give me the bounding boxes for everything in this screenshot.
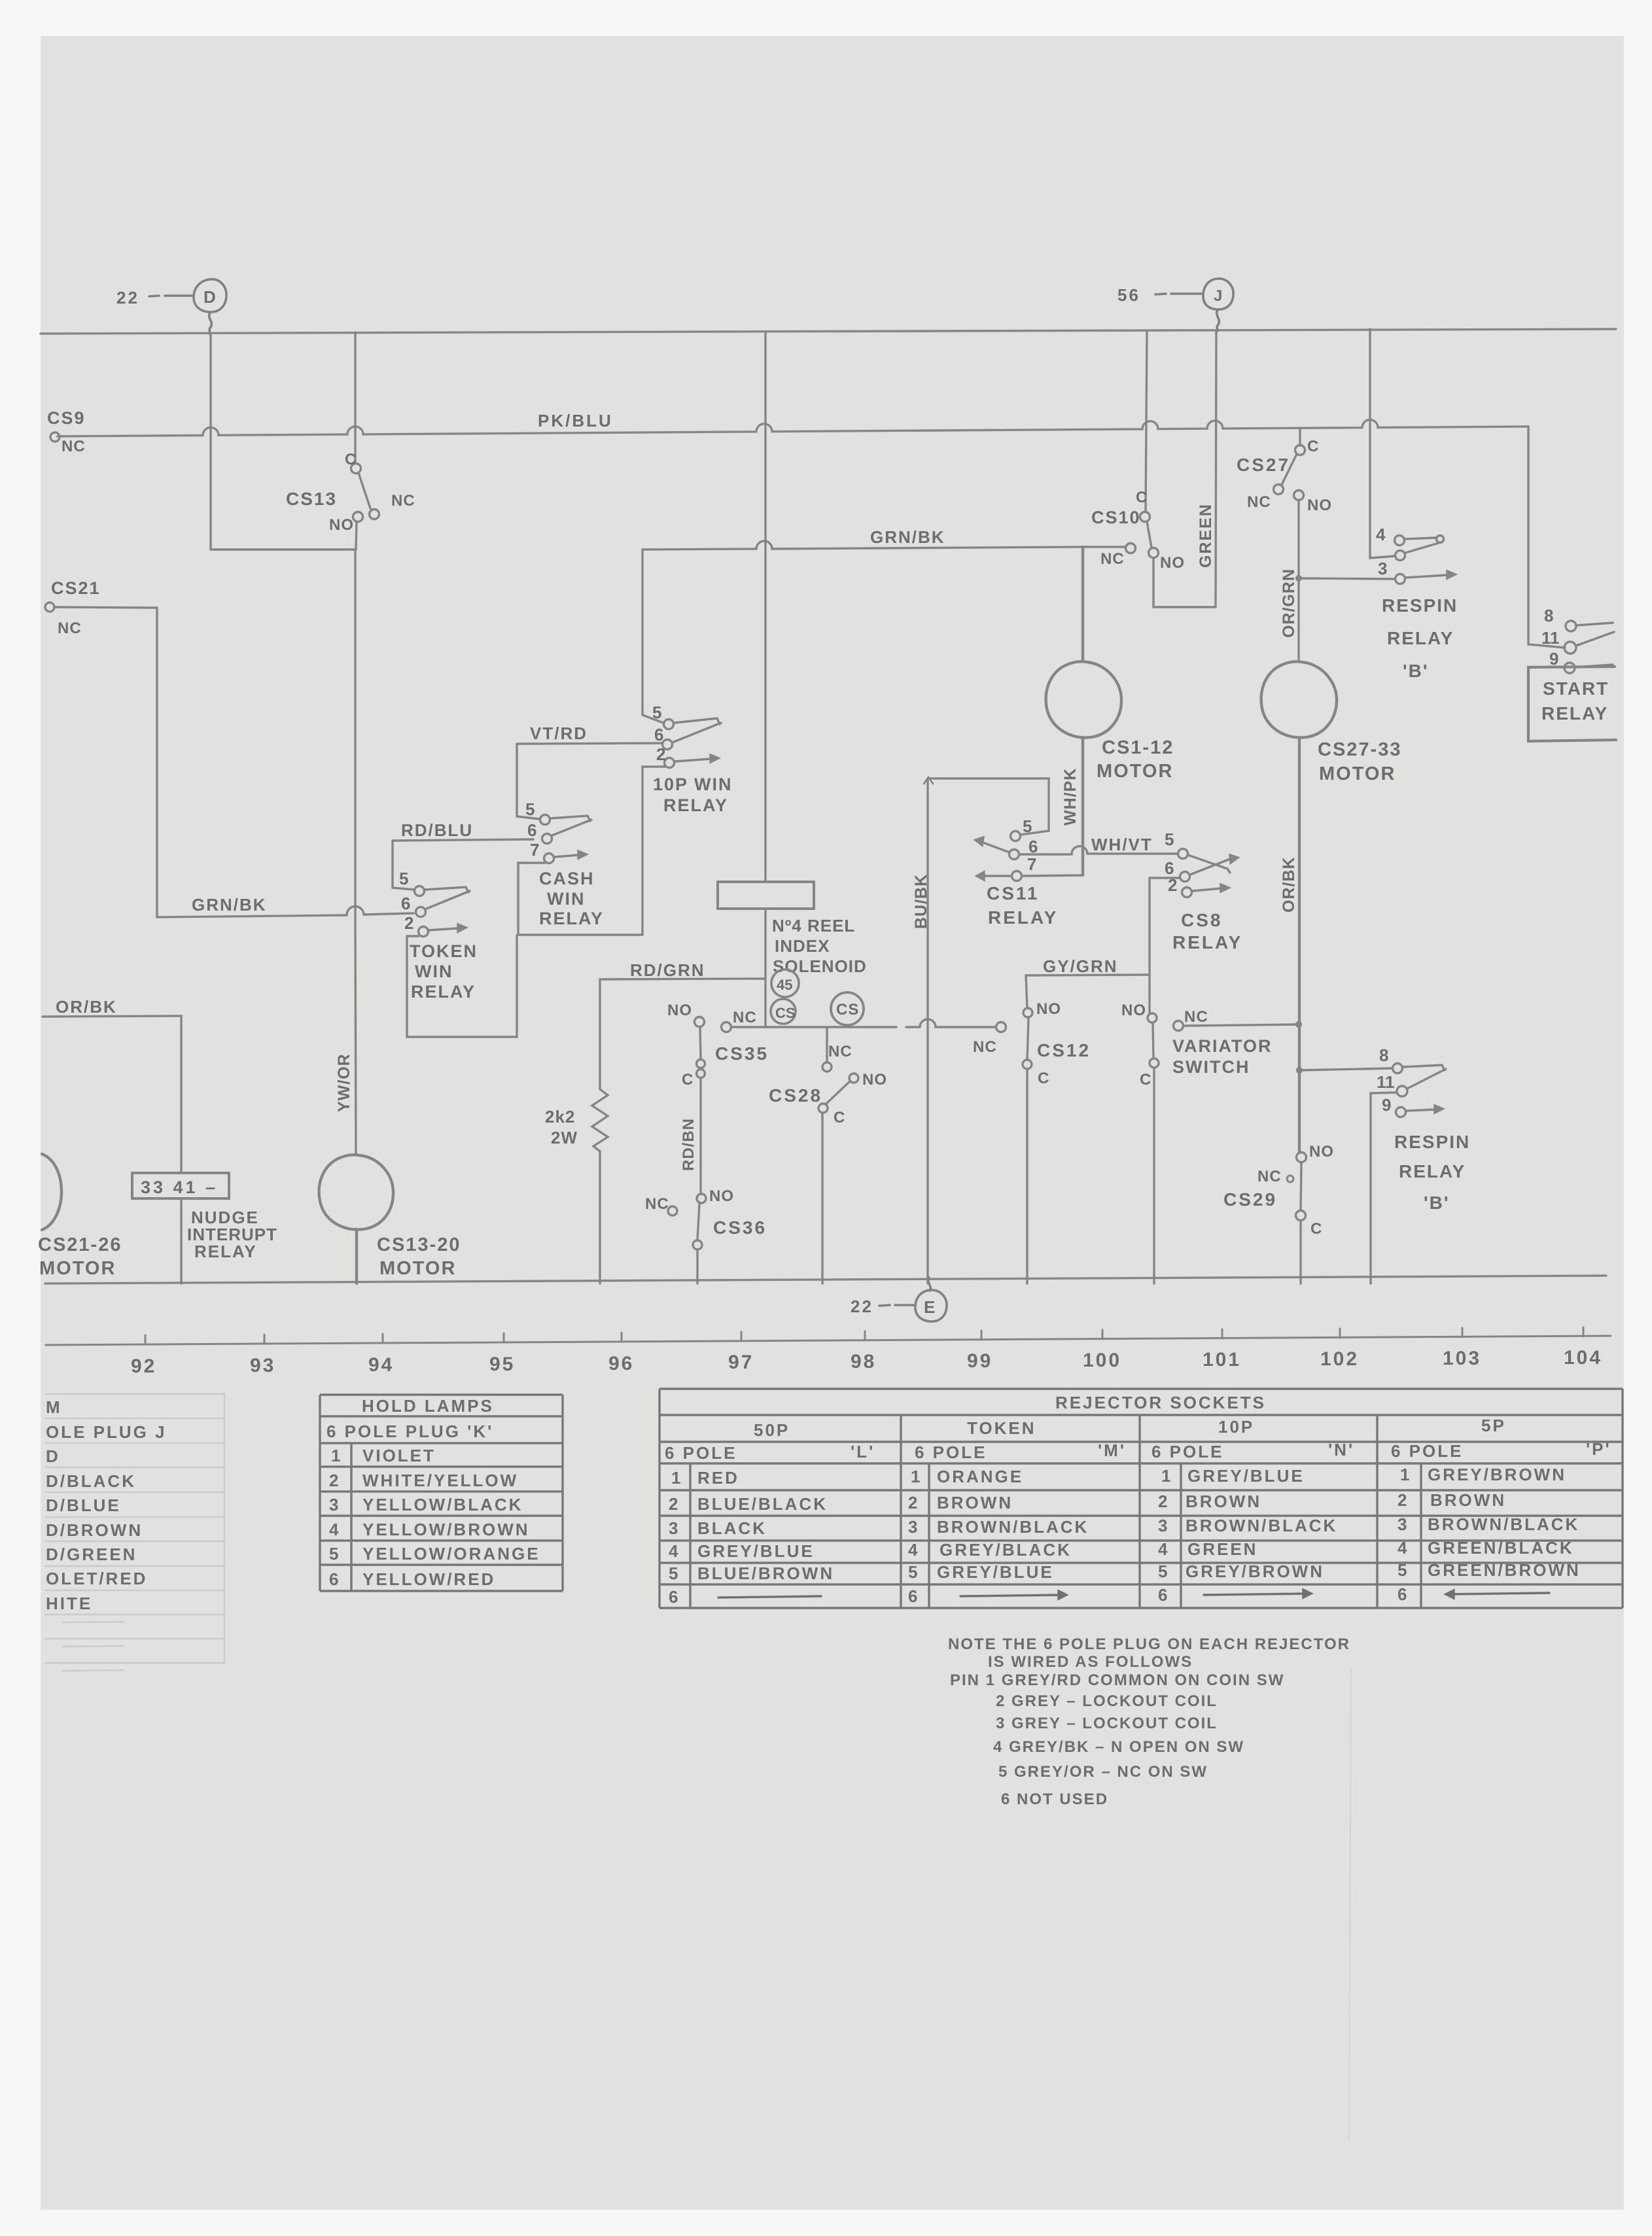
- svg-text:3: 3: [329, 1495, 340, 1514]
- svg-text:98: 98: [851, 1351, 876, 1372]
- svg-text:8: 8: [1379, 1045, 1388, 1065]
- svg-text:SWITCH: SWITCH: [1172, 1057, 1250, 1077]
- svg-text:NO: NO: [1160, 554, 1185, 572]
- svg-text:NO: NO: [1121, 1002, 1146, 1019]
- svg-text:CS35: CS35: [715, 1043, 769, 1064]
- svg-text:92: 92: [131, 1355, 156, 1377]
- svg-text:GREY/BLUE: GREY/BLUE: [1187, 1466, 1305, 1486]
- svg-text:GREEN/BLACK: GREEN/BLACK: [1428, 1538, 1574, 1558]
- svg-text:6 POLE: 6 POLE: [1151, 1442, 1223, 1461]
- svg-text:RESPIN: RESPIN: [1382, 595, 1458, 616]
- svg-text:6: 6: [401, 894, 410, 913]
- svg-text:NO: NO: [862, 1071, 887, 1089]
- svg-text:6: 6: [669, 1587, 680, 1607]
- svg-text:RELAY: RELAY: [663, 795, 728, 815]
- svg-text:M: M: [46, 1397, 62, 1417]
- svg-text:5: 5: [525, 799, 535, 819]
- svg-text:103: 103: [1443, 1348, 1481, 1369]
- svg-text:GREEN/BROWN: GREEN/BROWN: [1428, 1560, 1581, 1580]
- svg-text:PIN 1 GREY/RD COMMON ON COIN S: PIN 1 GREY/RD COMMON ON COIN SW: [950, 1671, 1284, 1689]
- svg-text:6: 6: [654, 725, 663, 744]
- svg-text:NOTE THE 6 POLE PLUG ON EACH R: NOTE THE 6 POLE PLUG ON EACH REJECTOR: [948, 1635, 1350, 1653]
- svg-text:BROWN/BLACK: BROWN/BLACK: [1428, 1514, 1579, 1534]
- svg-text:2: 2: [1158, 1492, 1169, 1511]
- svg-text:BROWN: BROWN: [937, 1493, 1013, 1512]
- svg-text:OR/GRN: OR/GRN: [1280, 568, 1298, 638]
- svg-text:22: 22: [851, 1297, 873, 1316]
- svg-text:CS21: CS21: [51, 578, 101, 598]
- svg-text:5 GREY/OR – NC ON SW: 5 GREY/OR – NC ON SW: [998, 1763, 1208, 1781]
- svg-text:WH/VT: WH/VT: [1091, 835, 1153, 854]
- svg-text:1: 1: [1161, 1466, 1172, 1486]
- svg-text:2W: 2W: [551, 1128, 578, 1147]
- svg-text:BROWN/BLACK: BROWN/BLACK: [937, 1517, 1089, 1537]
- svg-text:BROWN: BROWN: [1430, 1490, 1506, 1510]
- svg-text:YELLOW/RED: YELLOW/RED: [362, 1569, 495, 1589]
- svg-text:C: C: [1307, 438, 1318, 455]
- svg-text:BROWN: BROWN: [1186, 1492, 1261, 1511]
- svg-text:MOTOR: MOTOR: [39, 1258, 116, 1279]
- svg-text:2 GREY – LOCKOUT COIL: 2 GREY – LOCKOUT COIL: [996, 1692, 1218, 1710]
- svg-text:RELAY: RELAY: [411, 982, 476, 1002]
- svg-text:3: 3: [1397, 1514, 1409, 1534]
- svg-text:RD/GRN: RD/GRN: [630, 960, 705, 980]
- svg-text:6 POLE: 6 POLE: [915, 1442, 987, 1462]
- svg-text:VARIATOR: VARIATOR: [1172, 1036, 1273, 1056]
- svg-text:4: 4: [1158, 1539, 1169, 1559]
- svg-text:CS13-20: CS13-20: [377, 1234, 461, 1255]
- svg-text:HOLD LAMPS: HOLD LAMPS: [362, 1396, 494, 1416]
- svg-text:5: 5: [1165, 830, 1174, 849]
- svg-text:C: C: [1038, 1070, 1049, 1087]
- svg-text:CS29: CS29: [1223, 1189, 1277, 1210]
- svg-text:D/GREEN: D/GREEN: [46, 1545, 137, 1564]
- svg-text:2: 2: [656, 744, 665, 764]
- svg-text:E: E: [924, 1297, 935, 1317]
- svg-text:4: 4: [908, 1540, 919, 1560]
- svg-text:SOLENOID: SOLENOID: [773, 956, 867, 976]
- svg-text:NO: NO: [1309, 1143, 1334, 1161]
- svg-text:BROWN/BLACK: BROWN/BLACK: [1186, 1516, 1337, 1535]
- svg-text:2: 2: [669, 1494, 680, 1514]
- svg-text:MOTOR: MOTOR: [1319, 763, 1396, 784]
- svg-text:4: 4: [1376, 525, 1386, 544]
- svg-text:6: 6: [1397, 1584, 1409, 1604]
- svg-text:CASH: CASH: [539, 869, 595, 888]
- svg-text:8: 8: [1544, 606, 1553, 625]
- svg-text:100: 100: [1083, 1350, 1121, 1371]
- svg-text:RELAY: RELAY: [539, 909, 604, 928]
- svg-text:97: 97: [728, 1352, 754, 1373]
- svg-text:HITE: HITE: [46, 1594, 92, 1613]
- svg-text:'B': 'B': [1403, 661, 1429, 681]
- svg-text:2: 2: [1168, 875, 1177, 895]
- svg-text:D/BLACK: D/BLACK: [46, 1471, 136, 1491]
- svg-text:MOTOR: MOTOR: [379, 1258, 456, 1279]
- svg-text:ORANGE: ORANGE: [937, 1467, 1023, 1486]
- svg-text:5: 5: [1158, 1562, 1169, 1581]
- svg-text:2: 2: [1397, 1490, 1409, 1510]
- svg-text:94: 94: [368, 1354, 394, 1376]
- svg-text:2k2: 2k2: [545, 1107, 575, 1127]
- svg-text:GREY/BLACK: GREY/BLACK: [940, 1540, 1072, 1560]
- svg-text:YELLOW/ORANGE: YELLOW/ORANGE: [362, 1544, 540, 1563]
- svg-text:5: 5: [399, 869, 408, 888]
- svg-text:VT/RD: VT/RD: [530, 724, 588, 743]
- svg-text:GREY/BROWN: GREY/BROWN: [1186, 1562, 1324, 1581]
- svg-text:4: 4: [329, 1520, 340, 1539]
- svg-text:WH/PK: WH/PK: [1061, 768, 1080, 826]
- svg-text:1: 1: [671, 1468, 682, 1488]
- svg-text:IS WIRED AS FOLLOWS: IS WIRED AS FOLLOWS: [988, 1653, 1193, 1671]
- svg-text:CS27: CS27: [1237, 455, 1290, 475]
- svg-text:5: 5: [908, 1562, 919, 1582]
- svg-text:CS12: CS12: [1037, 1040, 1091, 1060]
- svg-text:YELLOW/BROWN: YELLOW/BROWN: [362, 1520, 530, 1539]
- svg-text:2: 2: [908, 1493, 919, 1512]
- svg-text:2: 2: [404, 913, 413, 933]
- svg-text:6: 6: [1158, 1585, 1169, 1605]
- svg-text:CS9: CS9: [47, 408, 86, 428]
- svg-text:GREEN: GREEN: [1187, 1539, 1257, 1559]
- svg-text:99: 99: [967, 1350, 993, 1372]
- svg-text:1: 1: [1400, 1465, 1411, 1484]
- svg-text:9: 9: [1382, 1095, 1391, 1115]
- svg-text:104: 104: [1564, 1347, 1602, 1369]
- svg-text:REJECTOR SOCKETS: REJECTOR SOCKETS: [1055, 1393, 1266, 1412]
- svg-text:CS27-33: CS27-33: [1318, 739, 1401, 760]
- svg-text:WIN: WIN: [415, 962, 453, 981]
- svg-text:NO: NO: [1307, 497, 1332, 514]
- svg-text:4: 4: [669, 1541, 680, 1561]
- svg-text:RD/BN: RD/BN: [680, 1118, 697, 1171]
- svg-text:NO: NO: [667, 1002, 692, 1019]
- svg-text:33 41 –: 33 41 –: [141, 1178, 218, 1197]
- svg-text:RELAY: RELAY: [1399, 1161, 1466, 1181]
- svg-text:5: 5: [652, 703, 661, 722]
- svg-text:101: 101: [1203, 1349, 1241, 1371]
- svg-text:3: 3: [908, 1517, 919, 1537]
- svg-text:C: C: [1310, 1220, 1322, 1238]
- svg-text:GY/GRN: GY/GRN: [1043, 956, 1118, 976]
- svg-text:10P WIN: 10P WIN: [653, 775, 733, 794]
- svg-text:RD/BLU: RD/BLU: [401, 820, 473, 840]
- svg-text:'L': 'L': [851, 1442, 875, 1461]
- svg-text:OLE PLUG J: OLE PLUG J: [46, 1422, 167, 1442]
- svg-text:OR/BK: OR/BK: [1280, 856, 1298, 913]
- svg-text:NC: NC: [733, 1009, 757, 1026]
- svg-text:96: 96: [608, 1353, 634, 1374]
- svg-text:WIN: WIN: [547, 889, 585, 909]
- svg-text:INDEX: INDEX: [775, 936, 830, 956]
- svg-text:4: 4: [1397, 1538, 1409, 1558]
- svg-text:6 POLE: 6 POLE: [1391, 1441, 1463, 1461]
- svg-text:5P: 5P: [1481, 1416, 1506, 1435]
- svg-text:BLUE/BLACK: BLUE/BLACK: [697, 1494, 828, 1514]
- svg-text:102: 102: [1320, 1348, 1359, 1370]
- svg-text:RELAY: RELAY: [1541, 703, 1608, 724]
- svg-text:TOKEN: TOKEN: [410, 941, 478, 961]
- svg-text:4 GREY/BK – N OPEN ON SW: 4 GREY/BK – N OPEN ON SW: [993, 1738, 1244, 1756]
- svg-text:OLET/RED: OLET/RED: [46, 1569, 147, 1588]
- svg-text:GRN/BK: GRN/BK: [192, 895, 267, 915]
- svg-text:Nº4 REEL: Nº4 REEL: [772, 916, 855, 935]
- svg-text:D: D: [46, 1446, 60, 1466]
- svg-text:YW/OR: YW/OR: [335, 1053, 353, 1112]
- svg-text:BLUE/BROWN: BLUE/BROWN: [697, 1563, 834, 1583]
- svg-text:6 POLE: 6 POLE: [665, 1443, 737, 1463]
- svg-text:BLACK: BLACK: [697, 1518, 767, 1538]
- svg-text:6 NOT USED: 6 NOT USED: [1001, 1791, 1108, 1808]
- svg-text:VIOLET: VIOLET: [362, 1446, 436, 1465]
- svg-text:56: 56: [1117, 285, 1140, 305]
- svg-text:GREY/BLUE: GREY/BLUE: [697, 1541, 815, 1561]
- svg-text:5: 5: [1397, 1560, 1409, 1580]
- svg-text:RED: RED: [697, 1468, 739, 1488]
- svg-text:NC: NC: [1247, 493, 1271, 511]
- svg-text:'P': 'P': [1586, 1439, 1611, 1459]
- svg-text:CS21-26: CS21-26: [38, 1234, 122, 1255]
- svg-text:GREY/BLUE: GREY/BLUE: [937, 1562, 1054, 1582]
- svg-text:NC: NC: [391, 492, 415, 510]
- svg-text:3 GREY – LOCKOUT COIL: 3 GREY – LOCKOUT COIL: [996, 1715, 1218, 1732]
- svg-text:NC: NC: [1100, 550, 1125, 568]
- svg-text:5: 5: [1023, 816, 1032, 836]
- svg-text:OR/BK: OR/BK: [56, 997, 117, 1017]
- svg-text:RELAY: RELAY: [988, 907, 1058, 928]
- svg-text:'B': 'B': [1424, 1193, 1450, 1213]
- svg-text:RELAY: RELAY: [1387, 628, 1454, 648]
- svg-text:CS: CS: [836, 1001, 859, 1019]
- svg-text:45: 45: [777, 977, 792, 993]
- svg-text:1: 1: [911, 1467, 922, 1486]
- svg-text:CS11: CS11: [987, 883, 1040, 903]
- svg-text:6 POLE PLUG 'K': 6 POLE PLUG 'K': [326, 1422, 493, 1441]
- svg-text:CS36: CS36: [713, 1217, 767, 1238]
- svg-text:10P: 10P: [1218, 1417, 1254, 1437]
- svg-text:5: 5: [329, 1544, 340, 1563]
- svg-text:NO: NO: [709, 1187, 734, 1205]
- svg-text:6: 6: [527, 820, 536, 840]
- svg-text:2: 2: [329, 1471, 340, 1490]
- svg-text:9: 9: [1549, 649, 1558, 669]
- svg-text:TOKEN: TOKEN: [967, 1418, 1036, 1438]
- svg-text:MOTOR: MOTOR: [1097, 761, 1173, 782]
- svg-text:NO: NO: [1036, 1000, 1061, 1018]
- svg-text:START: START: [1543, 678, 1609, 699]
- svg-text:RESPIN: RESPIN: [1394, 1132, 1470, 1152]
- svg-text:22: 22: [116, 288, 139, 307]
- svg-text:CS1-12: CS1-12: [1102, 737, 1174, 758]
- svg-text:7: 7: [530, 840, 539, 860]
- svg-text:11: 11: [1541, 628, 1560, 648]
- svg-text:C: C: [834, 1109, 845, 1127]
- svg-text:D: D: [203, 287, 216, 307]
- svg-text:NC: NC: [58, 620, 82, 637]
- svg-text:CS8: CS8: [1181, 910, 1222, 930]
- svg-text:GRN/BK: GRN/BK: [870, 527, 945, 547]
- svg-text:C: C: [345, 451, 356, 468]
- svg-text:93: 93: [250, 1355, 275, 1376]
- svg-text:D/BROWN: D/BROWN: [46, 1520, 143, 1540]
- svg-text:NC: NC: [1184, 1008, 1208, 1026]
- svg-text:C: C: [1136, 489, 1147, 506]
- svg-text:CS28: CS28: [769, 1085, 822, 1106]
- svg-text:J: J: [1214, 287, 1222, 305]
- svg-text:GREY/BROWN: GREY/BROWN: [1428, 1465, 1566, 1484]
- svg-text:7: 7: [1027, 854, 1036, 874]
- svg-text:C: C: [1140, 1071, 1151, 1089]
- svg-text:95: 95: [489, 1354, 515, 1375]
- svg-text:'M': 'M': [1098, 1441, 1126, 1460]
- svg-text:NC: NC: [973, 1038, 997, 1056]
- svg-text:CS13: CS13: [286, 489, 337, 509]
- svg-text:6: 6: [329, 1569, 340, 1589]
- svg-text:50P: 50P: [754, 1420, 790, 1440]
- svg-text:C: C: [682, 1071, 693, 1089]
- svg-text:3: 3: [1158, 1516, 1169, 1535]
- svg-text:RELAY: RELAY: [1172, 932, 1242, 952]
- svg-text:NC: NC: [62, 438, 86, 455]
- svg-text:YELLOW/BLACK: YELLOW/BLACK: [362, 1495, 523, 1514]
- svg-text:NC: NC: [828, 1043, 852, 1060]
- svg-text:WHITE/YELLOW: WHITE/YELLOW: [362, 1471, 518, 1490]
- svg-text:'N': 'N': [1328, 1440, 1354, 1459]
- svg-text:NC: NC: [1257, 1168, 1282, 1185]
- svg-text:NO: NO: [329, 516, 354, 534]
- svg-text:RELAY: RELAY: [194, 1242, 257, 1261]
- svg-text:GREEN: GREEN: [1197, 503, 1215, 568]
- svg-text:CS10: CS10: [1091, 508, 1141, 527]
- svg-text:11: 11: [1377, 1072, 1395, 1092]
- svg-text:1: 1: [331, 1446, 342, 1465]
- svg-text:PK/BLU: PK/BLU: [538, 411, 613, 430]
- svg-text:6: 6: [908, 1586, 919, 1606]
- svg-text:3: 3: [1378, 559, 1387, 578]
- svg-text:D/BLUE: D/BLUE: [46, 1495, 121, 1515]
- svg-text:BU/BK: BU/BK: [912, 874, 930, 929]
- svg-text:5: 5: [669, 1563, 680, 1583]
- svg-text:3: 3: [669, 1518, 680, 1538]
- svg-text:CS: CS: [775, 1005, 796, 1021]
- svg-text:NC: NC: [645, 1195, 669, 1213]
